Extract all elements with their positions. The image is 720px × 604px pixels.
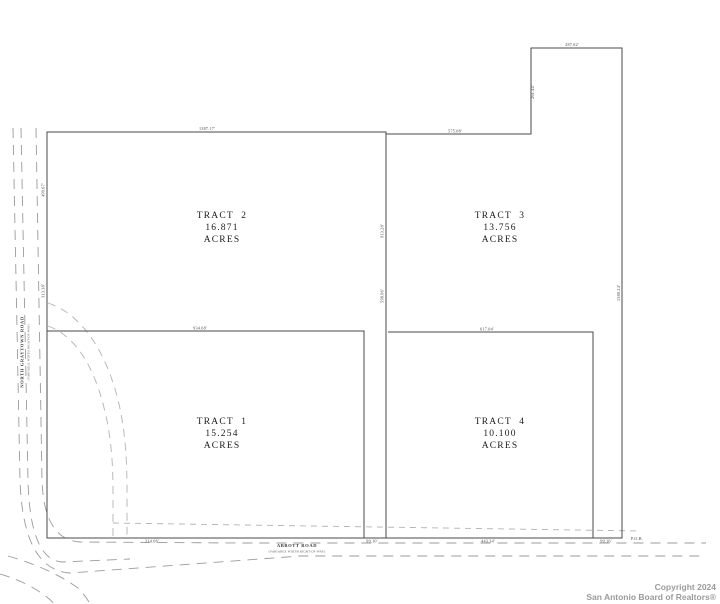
- tract3-name: TRACT 3: [475, 211, 526, 221]
- dim-north-west: 1387.17': [199, 126, 215, 131]
- dim-south-c: 443.34': [481, 539, 495, 544]
- dim-south-a: 314.06': [145, 539, 159, 544]
- tract1-name: TRACT 1: [197, 417, 248, 427]
- dim-tract1-north: 934.68': [193, 326, 207, 331]
- copyright-notice: Copyright 2024 San Antonio Board of Real…: [586, 583, 716, 602]
- tract2-name: TRACT 2: [197, 211, 248, 221]
- plat-map: TRACT 2 16.871 ACRES TRACT 3 13.756 ACRE…: [0, 0, 720, 604]
- survey-drawing: TRACT 2 16.871 ACRES TRACT 3 13.756 ACRE…: [0, 0, 720, 604]
- tract3-acreage: 13.756: [483, 223, 516, 233]
- tract2-acreage: 16.871: [205, 223, 238, 233]
- dim-north-east: 575.08': [448, 129, 462, 134]
- west-road-row: (VARIABLE WIDTH RIGHT-OF-WAY): [27, 324, 31, 381]
- road-corner-curve-b: [0, 574, 54, 604]
- copyright-line2: San Antonio Board of Realtors®: [586, 593, 716, 603]
- road-edge-west-inner: [21, 128, 130, 562]
- dim-notch-top: 287.62': [565, 42, 579, 47]
- south-road-row: (VARIABLE WIDTH RIGHT-OF-WAY): [269, 550, 326, 554]
- tract1-acreage: 15.254: [205, 429, 238, 439]
- road-edge-west-outer: [13, 128, 706, 573]
- dim-tract4-north: 617.04': [480, 327, 494, 332]
- dim-south-d: 99.16': [600, 539, 611, 544]
- tract3-unit: ACRES: [482, 235, 519, 245]
- road-edge-east-to-south-upper: [36, 128, 706, 543]
- tract4-name: TRACT 4: [475, 417, 526, 427]
- dim-east-side: 1380.24': [616, 285, 621, 301]
- south-road-name: ABBOTT ROAD: [277, 543, 317, 548]
- property-boundary: [47, 48, 622, 538]
- tract1-unit: ACRES: [204, 441, 241, 451]
- dim-divider-lower: 598.06': [380, 289, 385, 303]
- dim-west-lower: 313.38': [41, 284, 46, 298]
- west-road-name: NORTH GRAYTOWN ROAD: [20, 316, 25, 388]
- easement-line-south: [113, 523, 641, 531]
- dim-notch-west: 261.44': [530, 85, 535, 99]
- dim-pob: P.O.B.: [631, 536, 643, 541]
- tract4-acreage: 10.100: [483, 429, 516, 439]
- dim-south-b: 99.10': [366, 539, 377, 544]
- tract2-unit: ACRES: [204, 235, 241, 245]
- dim-divider-upper: 913.28': [380, 224, 385, 238]
- easement-curve-outer: [48, 303, 127, 538]
- road-corner-curve-a: [8, 556, 90, 604]
- dim-west-upper: 499.67': [41, 183, 46, 197]
- tract4-unit: ACRES: [482, 441, 519, 451]
- easement-curve-inner: [48, 326, 113, 538]
